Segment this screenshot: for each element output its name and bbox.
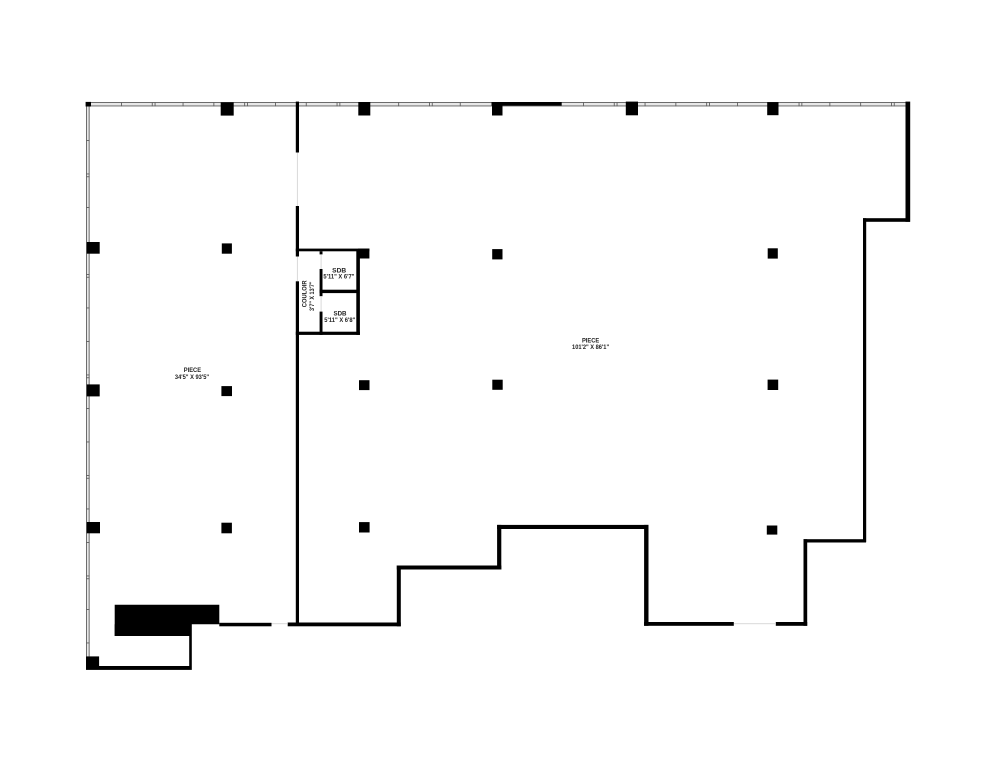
svg-text:5'11" X 6'8": 5'11" X 6'8" (324, 317, 355, 324)
svg-text:3'7" X 13'7": 3'7" X 13'7" (309, 281, 316, 311)
svg-text:5'11" X 6'7": 5'11" X 6'7" (323, 273, 354, 280)
svg-text:COULOIR: COULOIR (302, 280, 309, 307)
svg-text:34'5" X 93'5": 34'5" X 93'5" (175, 374, 209, 381)
svg-text:101'2" X 86'1": 101'2" X 86'1" (572, 344, 609, 351)
